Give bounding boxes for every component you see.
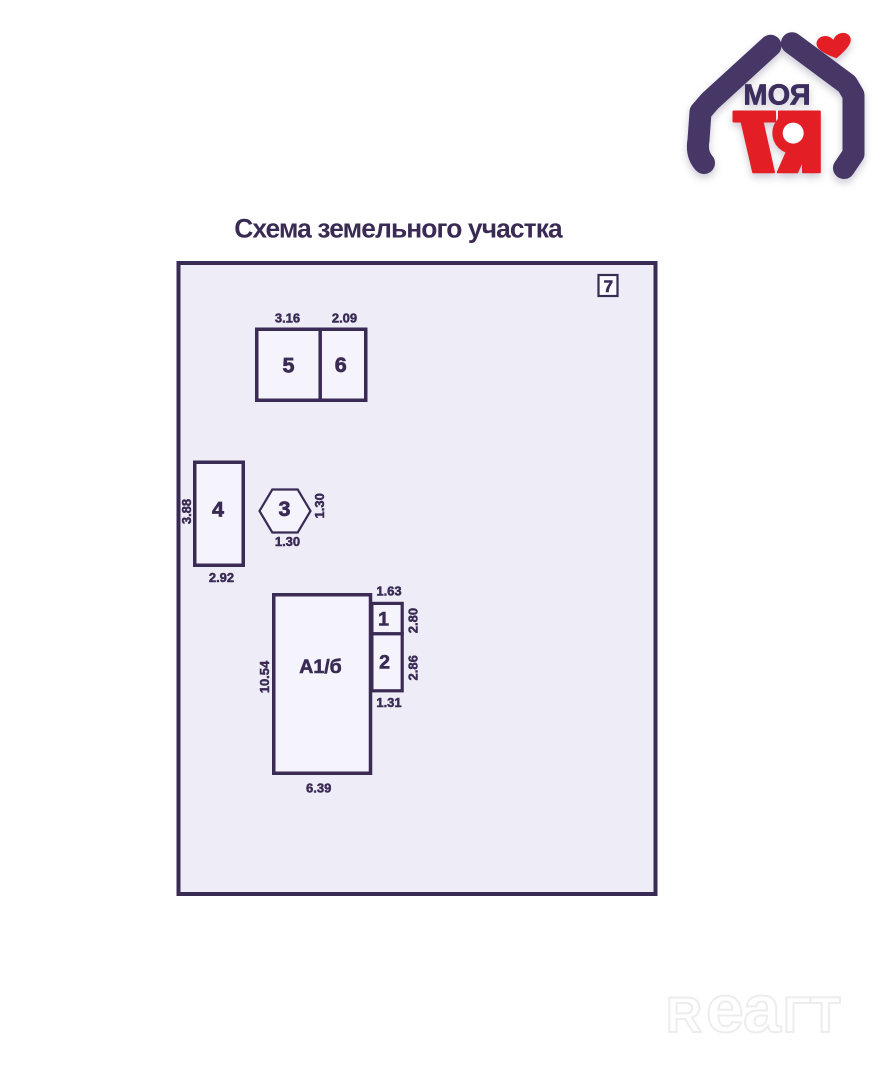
svg-text:R: R bbox=[666, 987, 702, 1043]
svg-text:a: a bbox=[743, 971, 782, 1047]
svg-text:Г: Г bbox=[783, 987, 811, 1043]
svg-text:T: T bbox=[810, 987, 841, 1043]
svg-text:e: e bbox=[706, 971, 744, 1047]
